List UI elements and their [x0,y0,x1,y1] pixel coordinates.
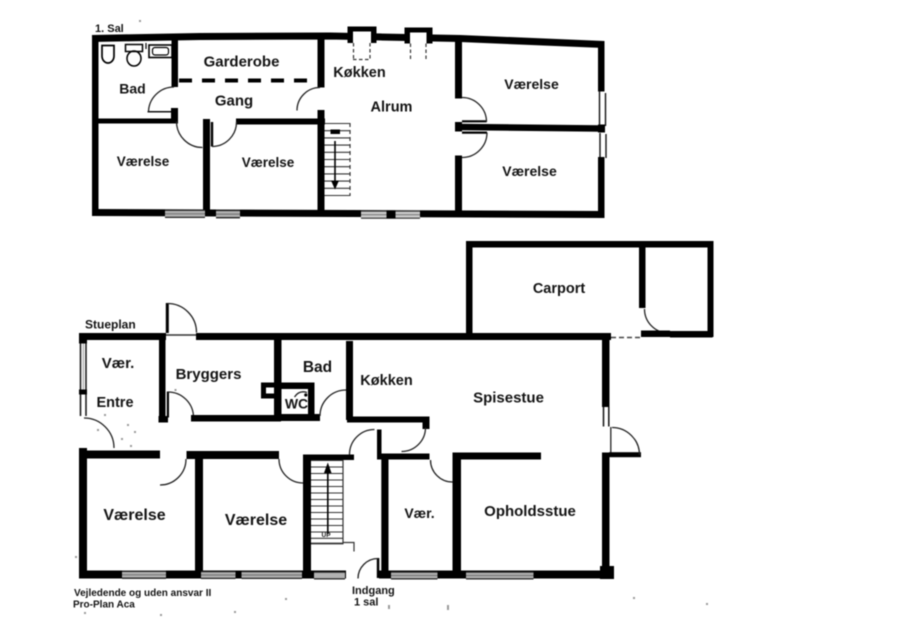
svg-text:Værelse: Værelse [242,155,295,170]
svg-text:Køkken: Køkken [360,373,412,389]
svg-text:UP: UP [322,532,332,539]
svg-text:Garderobe: Garderobe [204,54,280,71]
svg-text:Stueplan: Stueplan [85,318,136,332]
svg-text:1. Sal: 1. Sal [95,23,124,35]
svg-text:Værelse: Værelse [117,154,170,169]
svg-text:Værelse: Værelse [103,507,165,524]
svg-text:Værelse: Værelse [225,512,287,529]
svg-text:Vær.: Vær. [404,505,434,521]
svg-text:Værelse: Værelse [504,76,559,92]
svg-text:1 sal: 1 sal [354,597,378,609]
svg-text:Spisestue: Spisestue [473,390,544,407]
svg-text:Opholdsstue: Opholdsstue [484,503,576,520]
svg-text:Værelse: Værelse [502,163,557,179]
svg-text:Indgang: Indgang [352,585,395,597]
svg-text:Bad: Bad [303,359,332,376]
svg-text:WC: WC [285,396,308,412]
svg-text:Vejledende og uden ansvar II: Vejledende og uden ansvar II [74,588,211,599]
svg-text:Vær.: Vær. [102,355,135,372]
svg-text:Pro-Plan Aca: Pro-Plan Aca [73,600,135,611]
svg-text:Gang: Gang [215,93,253,110]
svg-text:Bryggers: Bryggers [176,366,242,383]
svg-text:Køkken: Køkken [333,65,385,81]
svg-text:Entre: Entre [96,395,133,411]
svg-text:Carport: Carport [533,281,586,297]
svg-text:Bad: Bad [119,81,145,97]
svg-text:Alrum: Alrum [371,100,413,116]
